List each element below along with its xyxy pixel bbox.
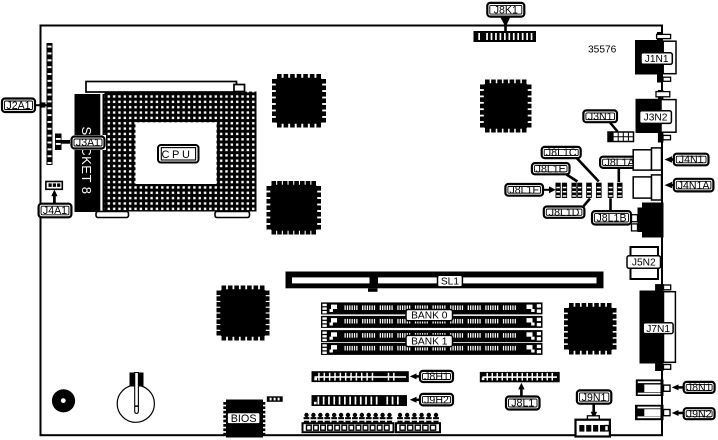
svg-text:J3N1: J3N1 [588,111,613,123]
svg-text:J3A1: J3A1 [76,137,100,149]
svg-text:SL1: SL1 [441,277,459,288]
svg-text:J8L1F: J8L1F [509,185,539,197]
svg-text:J4A1: J4A1 [43,205,67,217]
svg-text:J4N1A: J4N1A [678,180,711,192]
svg-text:J9N2: J9N2 [687,408,712,420]
svg-text:J8L1A: J8L1A [605,157,636,169]
svg-text:CPU: CPU [161,149,192,161]
svg-text:J9N1: J9N1 [582,392,607,404]
svg-text:J1N1: J1N1 [645,54,669,65]
svg-text:J7N1: J7N1 [646,324,670,335]
svg-text:J8L1B: J8L1B [596,213,626,225]
svg-text:J8L1D: J8L1D [549,207,580,219]
svg-text:J8L1E: J8L1E [536,163,566,175]
svg-text:J9H2: J9H2 [424,394,449,406]
svg-text:J8H1: J8H1 [424,371,449,383]
svg-text:J3N2: J3N2 [644,113,668,124]
svg-text:J8L1C: J8L1C [546,147,577,159]
svg-text:35576: 35576 [588,45,617,56]
svg-text:J8N1: J8N1 [687,382,712,394]
svg-text:J8L1: J8L1 [511,398,534,410]
svg-text:J5N2: J5N2 [632,258,656,269]
svg-text:BANK 0: BANK 0 [411,311,448,322]
svg-text:BIOS: BIOS [231,413,257,425]
svg-text:J4N1: J4N1 [679,154,704,166]
svg-text:J2A1: J2A1 [6,100,30,112]
svg-text:J8K1: J8K1 [494,4,518,16]
svg-text:BANK 1: BANK 1 [411,337,448,348]
